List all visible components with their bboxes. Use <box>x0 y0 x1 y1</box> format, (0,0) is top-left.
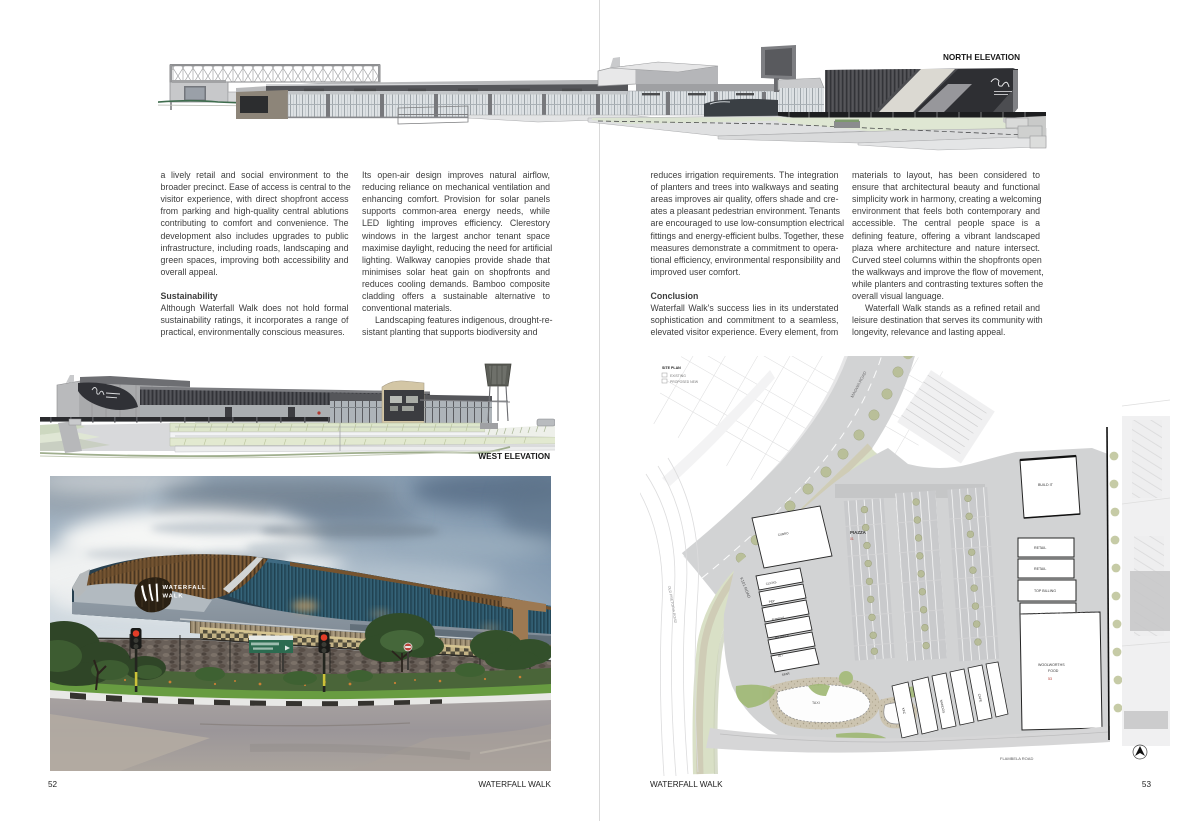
svg-text:BUILD IT: BUILD IT <box>1038 483 1054 487</box>
svg-text:WALK: WALK <box>163 594 184 600</box>
svg-text:EXISTING: EXISTING <box>670 374 686 378</box>
svg-text:01: 01 <box>850 537 854 541</box>
svg-text:PIAZZA: PIAZZA <box>850 530 867 535</box>
svg-text:WOOLWORTHS: WOOLWORTHS <box>1038 663 1065 667</box>
svg-text:RETAIL: RETAIL <box>1034 567 1046 571</box>
svg-text:FOOD: FOOD <box>1048 669 1059 673</box>
svg-text:RETAIL: RETAIL <box>1034 546 1046 550</box>
svg-text:TAXI: TAXI <box>812 701 820 705</box>
svg-text:PROPOSED NEW: PROPOSED NEW <box>670 380 699 384</box>
svg-text:53: 53 <box>1048 677 1052 681</box>
svg-text:SITE PLAN: SITE PLAN <box>662 366 681 370</box>
svg-text:FLAMBELA ROAD: FLAMBELA ROAD <box>1000 756 1033 761</box>
svg-text:TOP BILLING: TOP BILLING <box>1034 589 1056 593</box>
svg-text:WATERFALL: WATERFALL <box>163 585 207 591</box>
